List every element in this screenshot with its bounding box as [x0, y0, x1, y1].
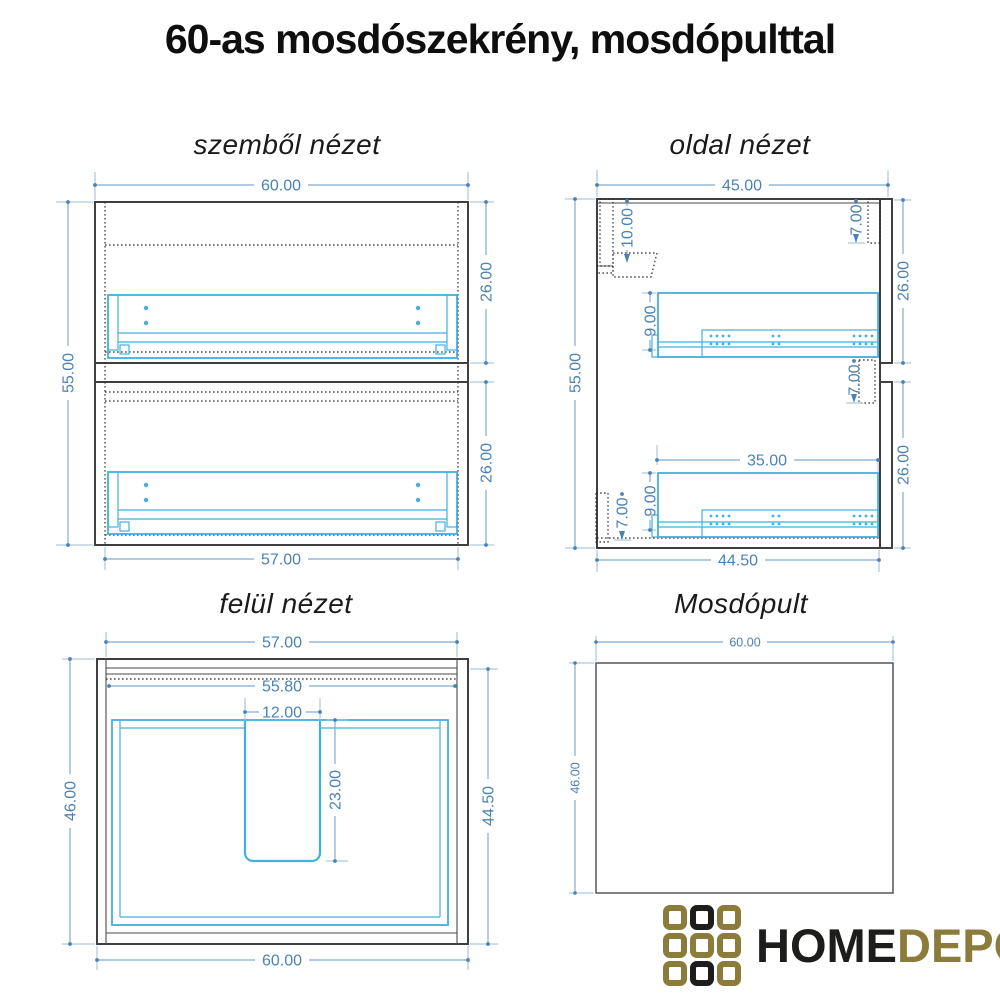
- logo-square: [663, 905, 687, 930]
- top-view-drawing: 57.00 55.80 12.00 23.00 46.00: [40, 590, 520, 990]
- svg-text:57.00: 57.00: [261, 552, 301, 569]
- dim-top-inner-width: 55.80: [107, 679, 457, 696]
- svg-text:45.00: 45.00: [722, 178, 762, 195]
- logo-square: [690, 905, 714, 930]
- logo-square: [663, 961, 687, 986]
- svg-text:7.00: 7.00: [847, 364, 864, 395]
- front-drawer-box-lower: [108, 472, 457, 534]
- svg-text:60.00: 60.00: [262, 953, 302, 970]
- svg-text:9.00: 9.00: [643, 485, 660, 516]
- svg-text:60.00: 60.00: [729, 636, 760, 650]
- top-cabinet-outline: [97, 659, 468, 944]
- dim-side-front-upper: 26.00: [894, 198, 913, 365]
- dim-counter-width: 60.00: [594, 636, 895, 662]
- svg-text:55.80: 55.80: [262, 679, 302, 696]
- dim-side-depth-top: 45.00: [595, 170, 890, 197]
- logo-text-depo: DEPO: [897, 919, 1000, 972]
- dim-top-depth-left: 46.00: [62, 657, 95, 946]
- svg-text:23.00: 23.00: [328, 770, 345, 810]
- dim-top-width-top: 57.00: [104, 632, 459, 657]
- front-view-label: szemből nézet: [193, 129, 380, 161]
- counter-outline: [596, 663, 893, 893]
- dim-front-drawer-lower: 26.00: [470, 380, 496, 547]
- svg-text:55.00: 55.00: [568, 353, 585, 393]
- dim-front-height: 55.00: [56, 200, 93, 547]
- top-basin-outline: [112, 720, 448, 925]
- dim-side-slide-upper: 9.00: [642, 291, 660, 352]
- side-view-label: oldal nézet: [670, 129, 811, 161]
- faucet-cutout: [245, 720, 320, 861]
- dim-side-front-gap-top: 7.00: [848, 199, 866, 243]
- homedepo-logo-grid-icon: [663, 905, 741, 986]
- front-view-drawing: 60.00 55.00 26.00 26.00 57.00: [40, 160, 520, 580]
- side-drawer-upper: [652, 293, 878, 357]
- svg-text:10.00: 10.00: [620, 208, 637, 248]
- dim-side-depth-bottom: 44.50: [595, 550, 881, 572]
- svg-text:55.00: 55.00: [61, 353, 78, 393]
- dim-side-back-gap-bottom: 7.00: [614, 492, 632, 540]
- svg-text:26.00: 26.00: [479, 262, 496, 302]
- front-hidden-edges: [105, 202, 458, 545]
- svg-text:26.00: 26.00: [896, 445, 913, 485]
- svg-text:44.50: 44.50: [481, 786, 498, 826]
- logo-text-home: HOME: [756, 919, 897, 972]
- front-drawer-box-upper: [108, 295, 457, 358]
- dim-side-slide-length: 35.00: [655, 445, 880, 472]
- page-title: 60-as mosdószekrény, mosdópulttal: [0, 16, 1000, 63]
- logo-square: [663, 933, 687, 958]
- svg-text:60.00: 60.00: [261, 178, 301, 195]
- dim-front-width-bottom: 57.00: [103, 547, 460, 570]
- logo-square: [717, 933, 741, 958]
- svg-text:9.00: 9.00: [643, 305, 660, 336]
- counter-view-drawing: 60.00 46.00: [555, 590, 975, 920]
- logo-square: [690, 933, 714, 958]
- svg-text:46.00: 46.00: [569, 762, 583, 793]
- dim-top-cutout-depth: 23.00: [326, 718, 348, 863]
- homedepo-logo: HOMEDEPO: [663, 905, 1000, 986]
- dim-side-slide-lower: 9.00: [642, 471, 660, 532]
- dim-side-front-lower: 26.00: [894, 380, 913, 550]
- dim-top-width-bottom: 60.00: [95, 946, 470, 970]
- logo-square: [717, 905, 741, 930]
- slide-screw-holes-upper: [710, 335, 874, 346]
- side-drawer-lower: [652, 473, 878, 537]
- dim-top-cutout-width: 12.00: [243, 698, 322, 722]
- logo-square: [717, 961, 741, 986]
- svg-text:12.00: 12.00: [262, 705, 302, 722]
- side-hidden-edges: [596, 199, 880, 542]
- svg-text:7.00: 7.00: [849, 204, 866, 235]
- dim-side-front-gap-mid: 7.00: [846, 359, 864, 403]
- svg-text:35.00: 35.00: [747, 453, 787, 470]
- svg-text:46.00: 46.00: [63, 781, 80, 821]
- svg-text:26.00: 26.00: [479, 443, 496, 483]
- homedepo-logo-text: HOMEDEPO: [756, 922, 1000, 969]
- svg-text:26.00: 26.00: [896, 261, 913, 301]
- dim-front-drawer-upper: 26.00: [470, 200, 496, 365]
- dim-front-width-top: 60.00: [93, 172, 470, 200]
- svg-text:7.00: 7.00: [615, 497, 632, 528]
- dim-top-depth-right: 44.50: [470, 667, 498, 946]
- dim-side-height: 55.00: [565, 197, 595, 550]
- svg-text:57.00: 57.00: [262, 635, 302, 652]
- dim-counter-depth: 46.00: [569, 661, 595, 895]
- svg-text:44.50: 44.50: [718, 553, 758, 570]
- side-view-drawing: 45.00 55.00 10.00 7.00 7.00: [555, 160, 975, 580]
- front-cabinet-outline: [95, 202, 468, 545]
- slide-screw-holes-lower: [710, 515, 874, 526]
- drawing-sheet: 60-as mosdószekrény, mosdópulttal szembő…: [0, 0, 1000, 1000]
- logo-square: [690, 961, 714, 986]
